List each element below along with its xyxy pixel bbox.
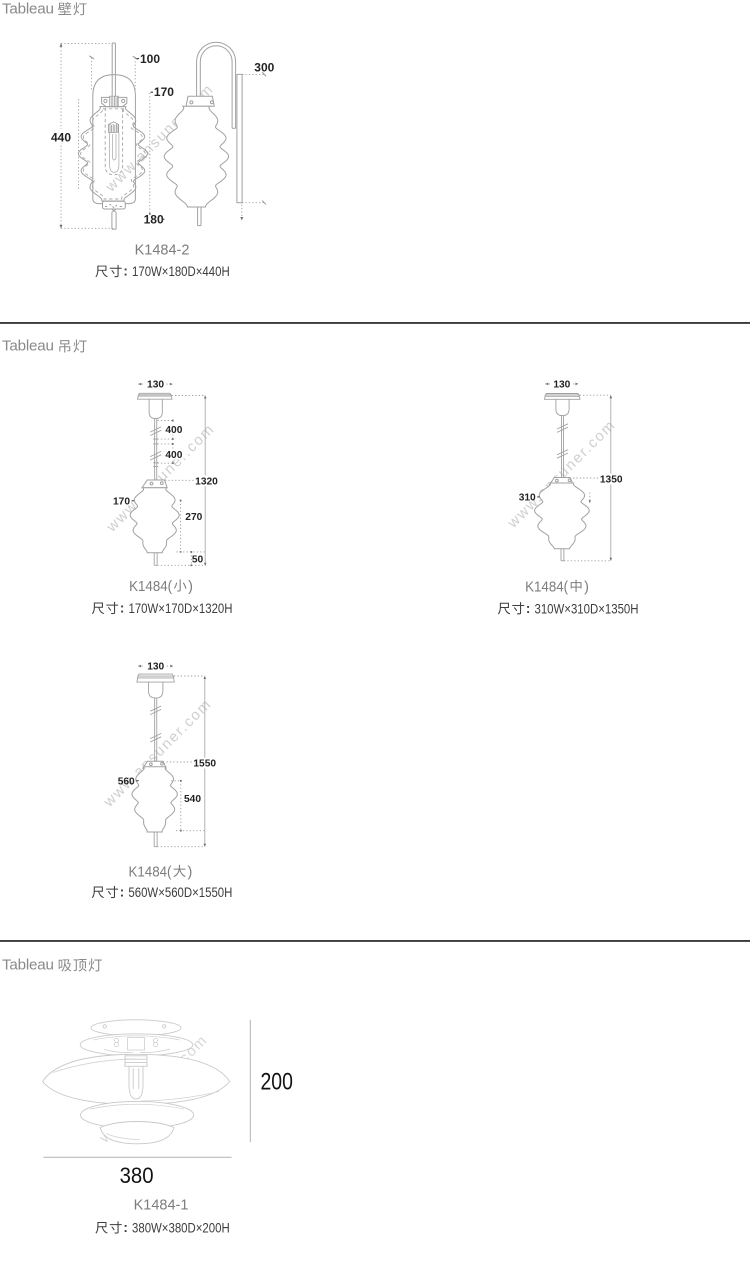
svg-text:310W×310D×1350H: 310W×310D×1350H xyxy=(535,601,639,616)
svg-text:560: 560 xyxy=(118,777,135,788)
svg-text::: : xyxy=(123,1220,127,1235)
svg-text:50: 50 xyxy=(192,555,204,566)
svg-text:1550: 1550 xyxy=(193,759,216,770)
svg-text:200: 200 xyxy=(261,1069,293,1096)
svg-text:170: 170 xyxy=(154,85,174,99)
svg-text:1320: 1320 xyxy=(195,476,218,487)
svg-text:130: 130 xyxy=(553,379,570,390)
svg-text:380: 380 xyxy=(120,1163,154,1188)
svg-text:300: 300 xyxy=(254,60,274,74)
svg-text:K1484(: K1484( xyxy=(129,865,172,881)
svg-text:K1484(: K1484( xyxy=(525,580,568,596)
svg-text:K1484-2: K1484-2 xyxy=(135,242,190,258)
svg-text::: : xyxy=(526,601,530,616)
svg-text:Tableau: Tableau xyxy=(2,0,54,17)
svg-text:K1484(: K1484( xyxy=(129,579,172,595)
svg-text::: : xyxy=(120,885,124,900)
svg-text:): ) xyxy=(584,580,589,596)
svg-text:560W×560D×1550H: 560W×560D×1550H xyxy=(128,885,232,900)
svg-text:Tableau: Tableau xyxy=(2,957,54,974)
svg-text:400: 400 xyxy=(165,450,182,461)
svg-text:K1484-1: K1484-1 xyxy=(134,1197,189,1213)
svg-text:): ) xyxy=(188,865,193,881)
svg-text:100: 100 xyxy=(140,52,160,66)
svg-text:540: 540 xyxy=(184,794,201,805)
svg-text:270: 270 xyxy=(185,512,202,523)
svg-text:1350: 1350 xyxy=(600,474,623,485)
svg-text::: : xyxy=(123,264,127,279)
svg-text:310: 310 xyxy=(519,493,536,504)
svg-text::: : xyxy=(120,601,124,616)
svg-text:Tableau: Tableau xyxy=(2,338,54,355)
svg-text:130: 130 xyxy=(147,380,164,391)
svg-text:170: 170 xyxy=(113,496,130,507)
svg-text:400: 400 xyxy=(165,425,182,436)
svg-text:380W×380D×200H: 380W×380D×200H xyxy=(132,1221,230,1236)
svg-text:180: 180 xyxy=(144,212,164,226)
svg-text:440: 440 xyxy=(51,131,71,145)
svg-text:): ) xyxy=(188,579,193,595)
svg-text:130: 130 xyxy=(147,662,164,673)
svg-text:170W×180D×440H: 170W×180D×440H xyxy=(132,264,230,279)
svg-text:170W×170D×1320H: 170W×170D×1320H xyxy=(129,601,233,616)
